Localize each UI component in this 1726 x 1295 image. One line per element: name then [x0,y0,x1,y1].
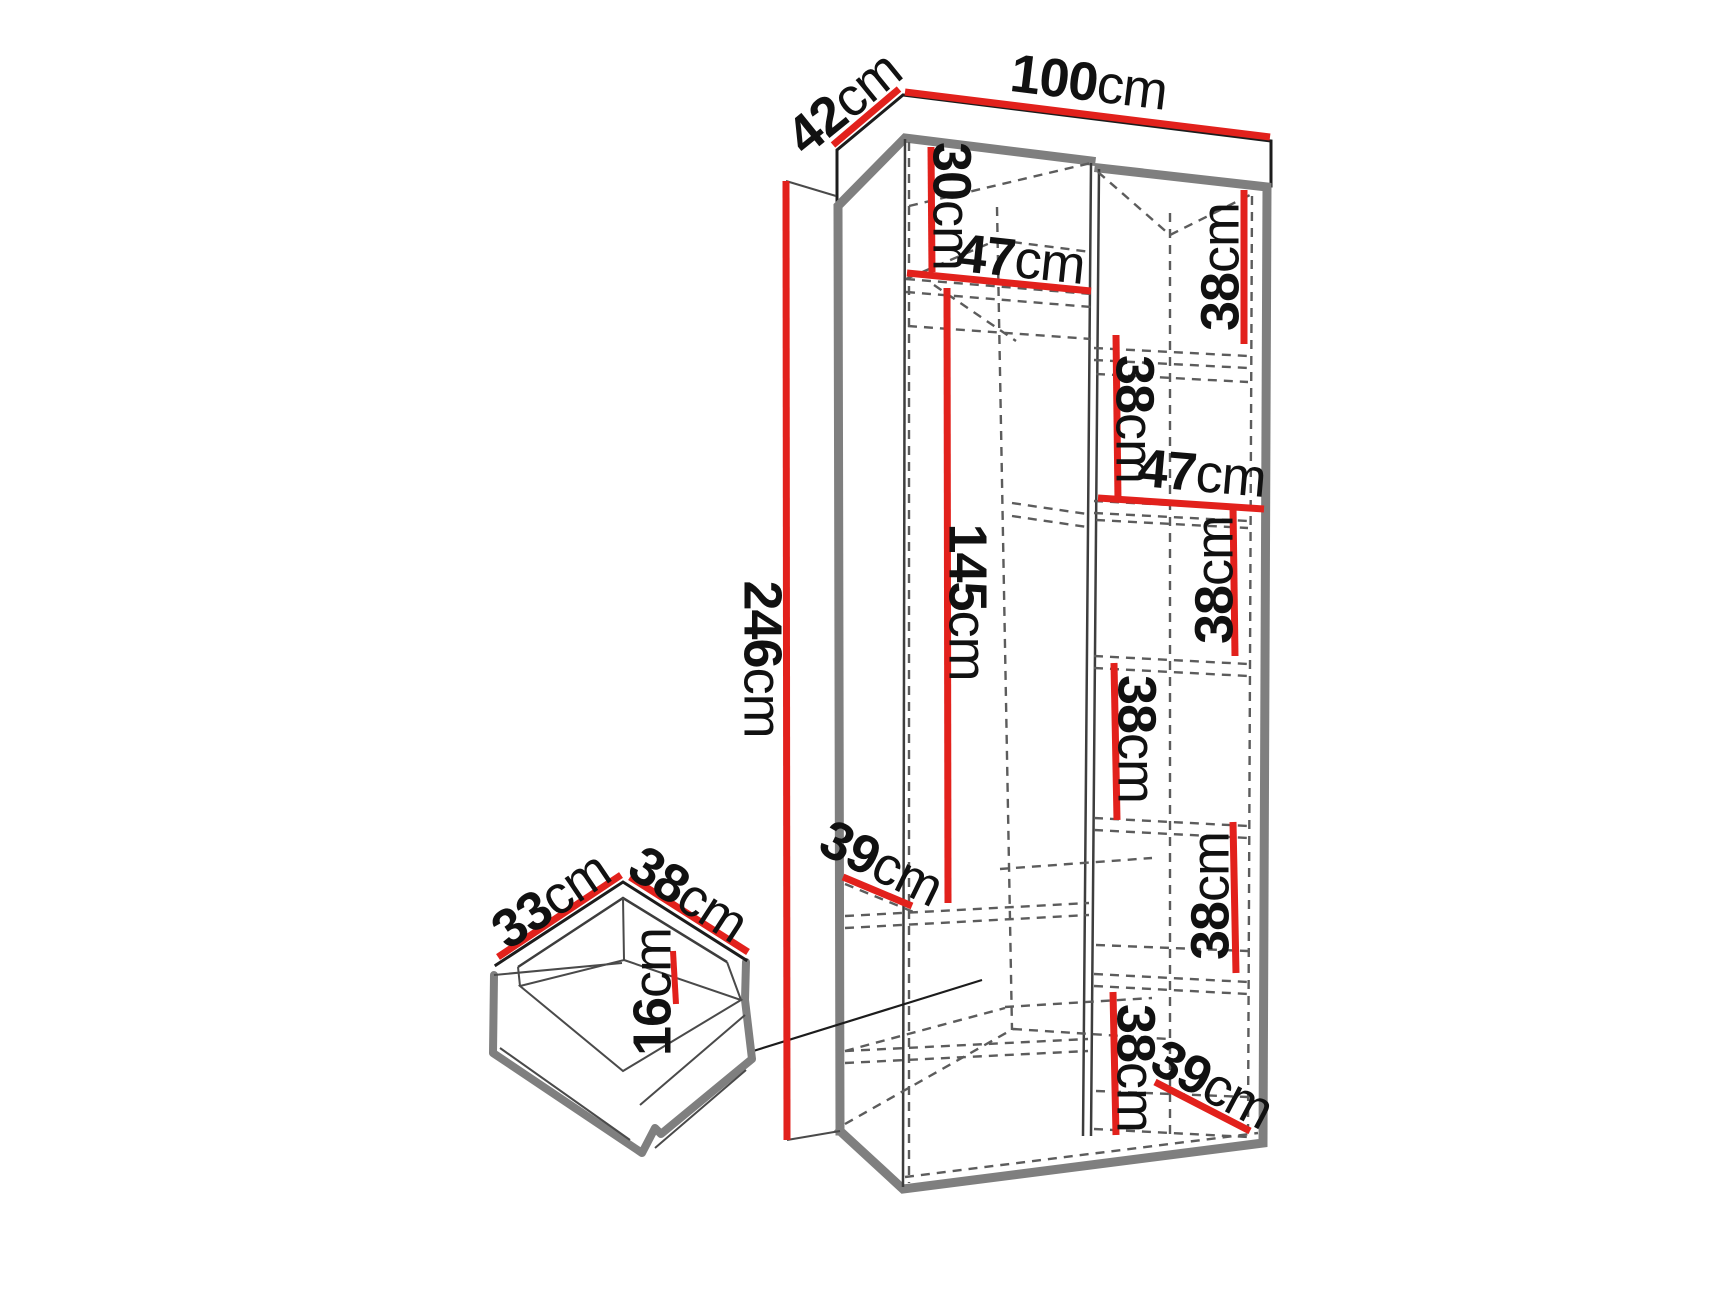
dim-cubby1-38-label: 38cm [1190,203,1250,331]
left-interior-corner-line [903,139,905,1187]
dim-drawer-16-label: 16cm [622,928,682,1056]
diagram-stage: 42cm 100cm 30cm 47cm 38cm 38cm 47cm 38cm… [0,0,1726,1295]
dim-cubby4-38-label: 38cm [1107,675,1167,803]
dim-cubby3-38-label: 38cm [1184,516,1244,644]
dim-mid-47-label: 47cm [1135,438,1268,509]
wardrobe-dimension-diagram: 42cm 100cm 30cm 47cm 38cm 38cm 47cm 38cm… [0,0,1726,1295]
dim-left-shelf-39-label: 39cm [811,808,952,918]
dim-hanging-145-label: 145cm [938,523,998,680]
center-divider-line [1083,163,1099,1136]
dim-cubby5-38-label: 38cm [1180,832,1240,960]
extension-ticks [786,181,840,1140]
dim-height-246-label: 246cm [733,580,793,737]
